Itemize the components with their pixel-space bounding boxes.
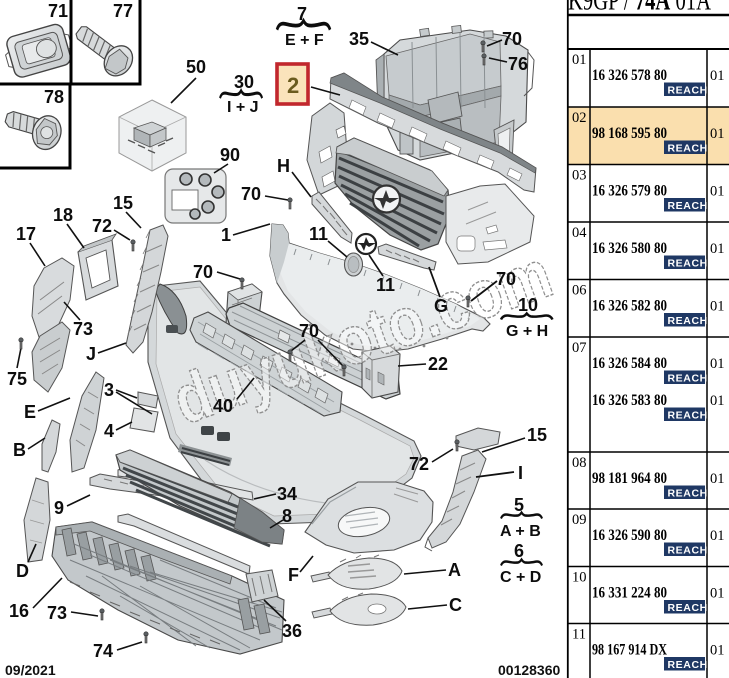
svg-text:11: 11 <box>572 627 586 643</box>
svg-text:01: 01 <box>710 643 725 659</box>
svg-text:72: 72 <box>92 216 112 236</box>
svg-text:C + D: C + D <box>500 569 541 586</box>
svg-text:H: H <box>277 156 290 176</box>
svg-text:15: 15 <box>527 425 547 445</box>
svg-text:16 326 580 80: 16 326 580 80 <box>592 240 667 257</box>
svg-text:REACH: REACH <box>668 373 708 385</box>
svg-text:REACH: REACH <box>668 258 708 270</box>
svg-text:73: 73 <box>73 319 93 339</box>
svg-text:70: 70 <box>502 29 522 49</box>
svg-text:98 181 964 80: 98 181 964 80 <box>592 470 667 487</box>
svg-text:07: 07 <box>572 340 587 356</box>
svg-text:D: D <box>16 561 29 581</box>
svg-text:98 168 595 80: 98 168 595 80 <box>592 125 667 142</box>
svg-text:16 326 578 80: 16 326 578 80 <box>592 67 667 84</box>
svg-text:REACH: REACH <box>668 200 708 212</box>
svg-text:78: 78 <box>44 87 64 107</box>
svg-text:40: 40 <box>213 396 233 416</box>
svg-text:8: 8 <box>282 506 292 526</box>
svg-text:71: 71 <box>48 1 68 21</box>
svg-text:16 326 583 80: 16 326 583 80 <box>592 392 667 409</box>
svg-text:01: 01 <box>710 184 725 200</box>
svg-text:01: 01 <box>710 528 725 544</box>
svg-text:75: 75 <box>7 369 27 389</box>
svg-text:A: A <box>448 560 461 580</box>
svg-text:01: 01 <box>710 471 725 487</box>
svg-text:15: 15 <box>113 193 133 213</box>
svg-text:73: 73 <box>47 603 67 623</box>
svg-text:09: 09 <box>572 512 587 528</box>
svg-text:03: 03 <box>572 168 587 184</box>
svg-text:36: 36 <box>282 621 302 641</box>
svg-text:G + H: G + H <box>506 323 548 340</box>
svg-text:1: 1 <box>221 225 231 245</box>
svg-text:REACH: REACH <box>668 659 708 671</box>
svg-text:C: C <box>449 595 462 615</box>
svg-text:04: 04 <box>572 225 587 241</box>
svg-text:70: 70 <box>193 262 213 282</box>
svg-text:E: E <box>24 402 36 422</box>
svg-text:90: 90 <box>220 145 240 165</box>
svg-text:3: 3 <box>104 380 114 400</box>
svg-text:I: I <box>518 463 523 483</box>
svg-text:E + F: E + F <box>285 32 324 49</box>
svg-text:11: 11 <box>376 275 395 295</box>
svg-text:16 326 584 80: 16 326 584 80 <box>592 355 667 372</box>
svg-text:16 326 582 80: 16 326 582 80 <box>592 298 667 315</box>
svg-text:72: 72 <box>409 454 429 474</box>
svg-text:18: 18 <box>53 205 73 225</box>
svg-text:REACH: REACH <box>668 315 708 327</box>
svg-text:4: 4 <box>104 421 114 441</box>
svg-text:9: 9 <box>54 498 64 518</box>
svg-text:34: 34 <box>277 484 297 504</box>
svg-text:16: 16 <box>9 601 29 621</box>
svg-text:REACH: REACH <box>668 410 708 422</box>
svg-text:06: 06 <box>572 283 587 299</box>
svg-text:35: 35 <box>349 29 369 49</box>
svg-text:REACH: REACH <box>668 143 708 155</box>
svg-text:A + B: A + B <box>500 523 541 540</box>
svg-text:5: 5 <box>514 495 524 515</box>
svg-text:70: 70 <box>496 269 516 289</box>
svg-text:01: 01 <box>710 393 725 409</box>
svg-text:00128360: 00128360 <box>498 662 561 678</box>
svg-text:10: 10 <box>518 295 538 315</box>
svg-text:50: 50 <box>186 57 206 77</box>
svg-text:01: 01 <box>710 241 725 257</box>
svg-text:J: J <box>86 344 96 364</box>
svg-text:01: 01 <box>710 68 725 84</box>
svg-text:16 326 579 80: 16 326 579 80 <box>592 183 667 200</box>
svg-text:I + J: I + J <box>227 99 259 116</box>
svg-text:30: 30 <box>234 72 254 92</box>
svg-text:01: 01 <box>710 356 725 372</box>
svg-text:01: 01 <box>710 299 725 315</box>
svg-text:6: 6 <box>514 541 524 561</box>
svg-text:98 167 914 DX: 98 167 914 DX <box>592 642 668 659</box>
svg-text:F: F <box>288 565 299 585</box>
svg-text:16 331 224 80: 16 331 224 80 <box>592 585 667 602</box>
svg-text:74: 74 <box>93 641 113 661</box>
svg-text:22: 22 <box>428 354 448 374</box>
svg-text:G: G <box>434 296 448 316</box>
svg-text:REACH: REACH <box>668 85 708 97</box>
svg-text:09/2021: 09/2021 <box>5 662 56 678</box>
svg-text:REACH: REACH <box>668 545 708 557</box>
svg-text:01: 01 <box>710 586 725 602</box>
svg-text:17: 17 <box>16 224 36 244</box>
svg-text:77: 77 <box>113 1 133 21</box>
svg-text:B: B <box>13 440 26 460</box>
svg-text:REACH: REACH <box>668 602 708 614</box>
svg-text:08: 08 <box>572 455 587 471</box>
svg-text:16 326 590 80: 16 326 590 80 <box>592 527 667 544</box>
svg-text:11: 11 <box>309 224 328 244</box>
svg-text:70: 70 <box>299 321 319 341</box>
svg-text:10: 10 <box>572 570 587 586</box>
svg-text:01: 01 <box>572 52 587 68</box>
svg-text:REACH: REACH <box>668 488 708 500</box>
svg-text:70: 70 <box>241 184 261 204</box>
svg-text:01: 01 <box>710 126 725 142</box>
svg-text:02: 02 <box>572 110 587 126</box>
svg-text:2: 2 <box>287 73 299 98</box>
svg-text:76: 76 <box>508 54 528 74</box>
